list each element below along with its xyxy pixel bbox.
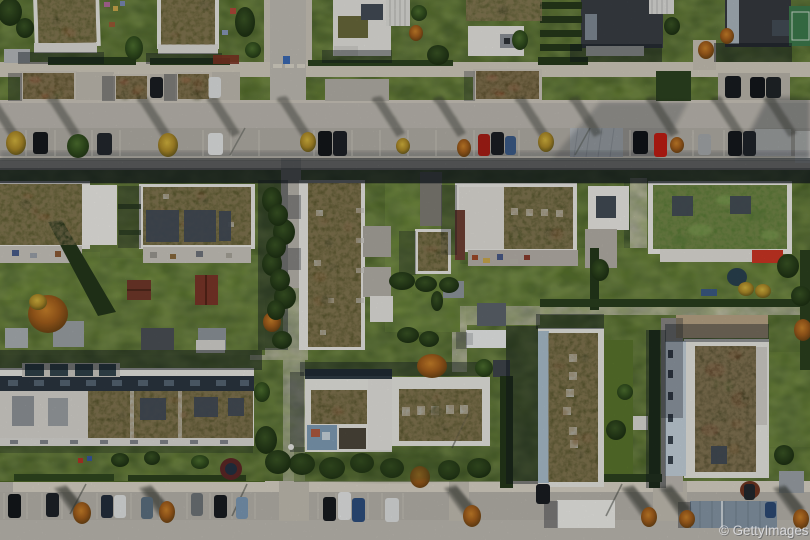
svg-text:© GettyImages: © GettyImages [719, 523, 809, 538]
